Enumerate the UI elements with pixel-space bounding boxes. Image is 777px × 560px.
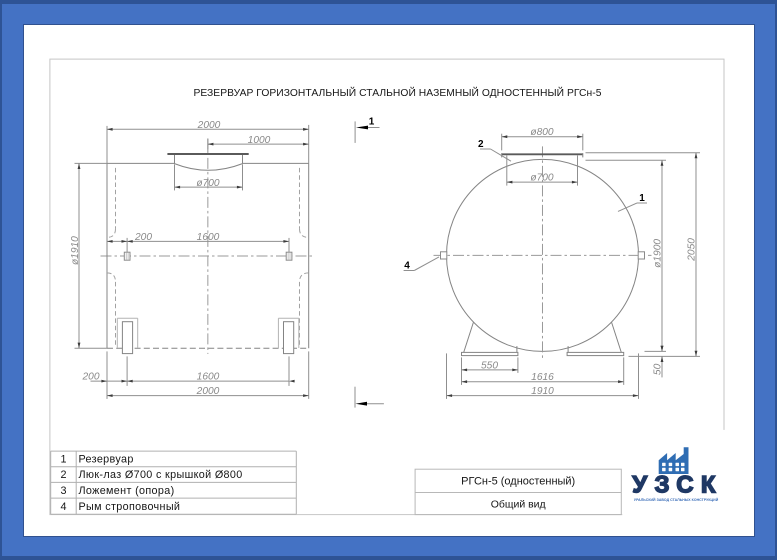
svg-text:ø700: ø700 [196,177,220,188]
svg-text:1616: 1616 [531,372,554,383]
svg-text:1000: 1000 [247,134,270,145]
svg-text:2: 2 [478,139,484,150]
svg-text:50: 50 [652,363,663,375]
svg-text:ø800: ø800 [530,127,554,138]
svg-text:4: 4 [404,260,410,271]
svg-text:1910: 1910 [531,386,554,397]
svg-text:РГСн-5 (одностенный): РГСн-5 (одностенный) [461,475,575,487]
svg-text:2: 2 [60,469,66,481]
svg-text:УЗСК: УЗСК [632,471,723,498]
svg-text:Ложемент (опора): Ложемент (опора) [78,484,174,496]
svg-text:200: 200 [133,231,151,242]
svg-text:УРАЛЬСКИЙ ЗАВОД СТАЛЬНЫХ КОНСТ: УРАЛЬСКИЙ ЗАВОД СТАЛЬНЫХ КОНСТРУКЦИЙ [633,497,718,501]
svg-text:1600: 1600 [196,371,219,382]
svg-text:Общий вид: Общий вид [490,498,545,510]
svg-text:2000: 2000 [195,386,219,397]
svg-text:2050: 2050 [686,237,697,261]
svg-text:РЕЗЕРВУАР ГОРИЗОНТАЛЬНЫЙ СТАЛЬ: РЕЗЕРВУАР ГОРИЗОНТАЛЬНЫЙ СТАЛЬНОЙ НАЗЕМН… [193,86,601,99]
svg-text:1: 1 [639,193,645,204]
svg-text:3: 3 [60,484,66,496]
svg-text:1: 1 [368,116,374,127]
svg-text:1600: 1600 [196,231,219,242]
svg-text:ø1910: ø1910 [69,235,80,264]
svg-text:ø1900: ø1900 [652,238,663,267]
svg-text:550: 550 [480,360,497,371]
svg-text:4: 4 [60,500,66,512]
svg-text:1: 1 [60,453,66,465]
svg-text:Рым строповочный: Рым строповочный [78,500,180,512]
svg-text:Резервуар: Резервуар [78,453,133,465]
svg-text:2000: 2000 [196,120,220,131]
svg-text:200: 200 [81,371,99,382]
svg-text:ø700: ø700 [530,172,554,183]
svg-text:Люк-лаз Ø700 с крышкой Ø800: Люк-лаз Ø700 с крышкой Ø800 [78,469,242,481]
